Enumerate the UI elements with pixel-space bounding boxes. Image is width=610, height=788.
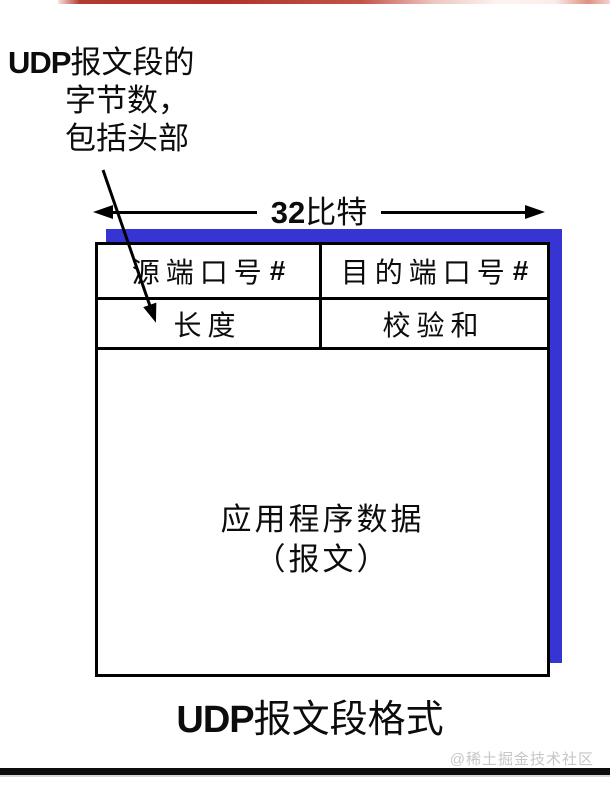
caption-udp-text: UDP: [176, 699, 253, 741]
cell-dest-port: 目的端口号#: [322, 245, 547, 297]
payload-line-2: （报文）: [221, 540, 425, 580]
length-field-annotation: UDP报文段的 字节数， 包括头部: [8, 44, 208, 158]
arrow-line-right: [381, 211, 525, 214]
annotation-line-1: UDP报文段的: [8, 44, 208, 82]
annotation-line-3: 包括头部: [65, 120, 208, 158]
hash-symbol: #: [513, 255, 529, 287]
cell-source-port-label: 源端口号: [132, 251, 268, 291]
32-bit-width-arrow: 32比特: [93, 191, 545, 233]
udp-segment-table: 源端口号# 目的端口号# 长度 校验和 应用程序数据 （报文）: [95, 242, 550, 677]
cell-checksum-label: 校验和: [382, 304, 484, 344]
cell-length: 长度: [98, 300, 322, 347]
width-label-number: 32: [271, 195, 305, 230]
slide-canvas: UDP报文段的 字节数， 包括头部 32比特 源端口号# 目的端口号# 长度 校…: [0, 0, 610, 788]
arrowhead-right-icon: [525, 205, 545, 219]
payload-area: 应用程序数据 （报文）: [98, 350, 547, 674]
arrow-line-left: [113, 211, 257, 214]
caption-cjk-text: 报文段格式: [254, 699, 444, 741]
cell-dest-port-label: 目的端口号: [341, 251, 511, 291]
annotation-line-2: 字节数，: [65, 82, 208, 120]
payload-line-1: 应用程序数据: [221, 500, 425, 540]
annotation-udp-text: UDP: [8, 45, 70, 80]
watermark-text: @稀土掘金技术社区: [450, 748, 594, 769]
table-row-ports: 源端口号# 目的端口号#: [98, 245, 547, 300]
arrowhead-left-icon: [93, 205, 113, 219]
table-row-length-checksum: 长度 校验和: [98, 300, 547, 350]
top-red-banner-edge: [58, 0, 610, 4]
cell-length-label: 长度: [173, 304, 241, 344]
hash-symbol: #: [270, 255, 286, 287]
width-label-unit: 比特: [305, 195, 367, 230]
width-label: 32比特: [271, 197, 367, 228]
annotation-line1-cjk: 报文段的: [70, 45, 194, 80]
figure-caption: UDP报文段格式: [75, 697, 545, 743]
cell-source-port: 源端口号#: [98, 245, 322, 297]
cell-checksum: 校验和: [322, 300, 547, 347]
bottom-divider-bar: [0, 768, 610, 777]
payload-text: 应用程序数据 （报文）: [221, 500, 425, 580]
